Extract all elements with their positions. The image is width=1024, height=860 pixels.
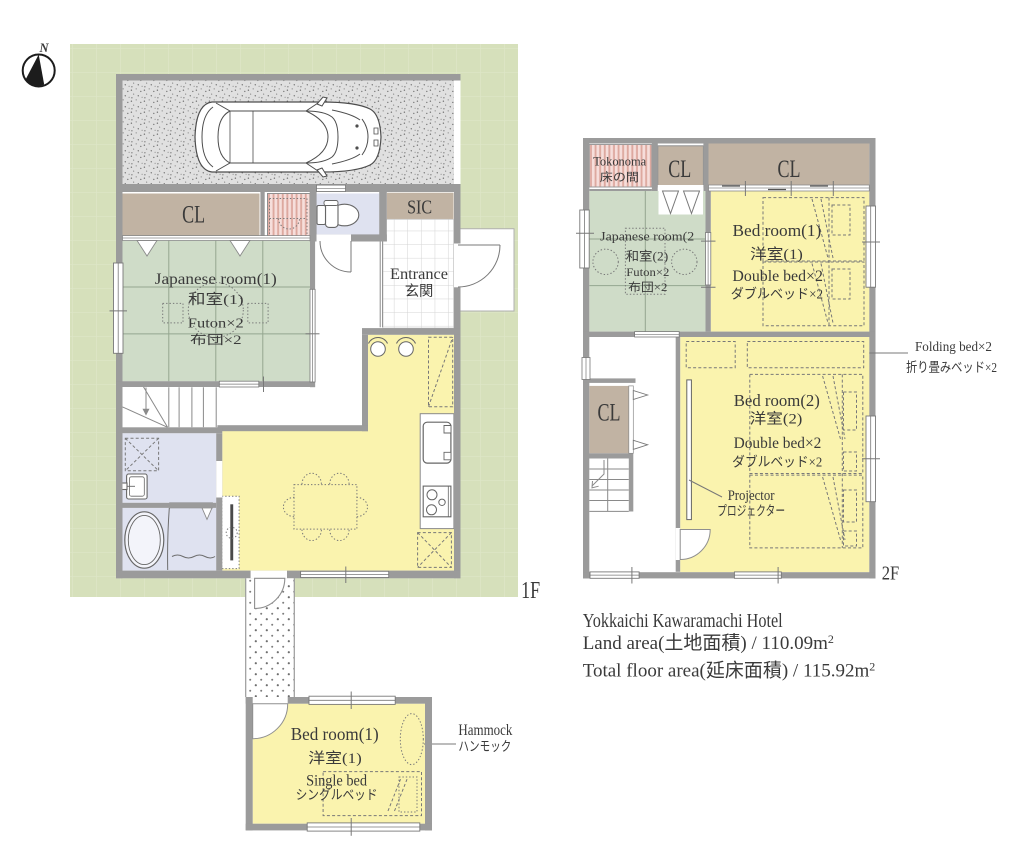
svg-text:玄関: 玄関 (405, 283, 434, 300)
svg-text:布団×2: 布団×2 (628, 281, 668, 294)
svg-text:CL: CL (778, 156, 801, 183)
svg-text:洋室(2): 洋室(2) (750, 411, 803, 428)
svg-text:SIC: SIC (407, 197, 432, 219)
svg-text:Double bed×2: Double bed×2 (734, 435, 822, 452)
svg-text:Tokonoma: Tokonoma (593, 154, 646, 169)
svg-text:Yokkaichi Kawaramachi Hotel: Yokkaichi Kawaramachi Hotel (583, 610, 783, 632)
svg-text:Bed room(2): Bed room(2) (734, 391, 820, 410)
svg-text:ダブルベッド×2: ダブルベッド×2 (732, 454, 822, 470)
svg-text:和室(1): 和室(1) (188, 291, 244, 308)
svg-text:床の間: 床の間 (600, 170, 639, 184)
svg-text:和室(2): 和室(2) (626, 248, 669, 263)
svg-text:Bed room(1): Bed room(1) (291, 724, 379, 745)
svg-text:Japanese room(1): Japanese room(1) (155, 271, 277, 288)
svg-text:Japanese room(2: Japanese room(2 (600, 229, 694, 244)
svg-text:N: N (38, 41, 49, 55)
svg-text:Entrance: Entrance (390, 266, 448, 283)
svg-text:Folding bed×2: Folding bed×2 (915, 339, 992, 354)
svg-text:Double bed×2: Double bed×2 (732, 268, 823, 285)
svg-text:CL: CL (668, 156, 691, 183)
svg-text:Futon×2: Futon×2 (188, 317, 244, 332)
svg-text:2F: 2F (882, 563, 900, 585)
svg-text:Projector: Projector (728, 488, 775, 504)
svg-text:布団×2: 布団×2 (190, 333, 242, 347)
svg-text:ハンモック: ハンモック (458, 739, 511, 754)
svg-text:1F: 1F (521, 578, 540, 604)
svg-text:Hammock: Hammock (458, 722, 512, 739)
svg-text:プロジェクター: プロジェクター (717, 504, 785, 519)
svg-text:Bed room(1): Bed room(1) (733, 221, 822, 240)
svg-text:CL: CL (182, 201, 205, 228)
svg-text:ダブルベッド×2: ダブルベッド×2 (731, 286, 823, 302)
svg-text:Futon×2: Futon×2 (626, 267, 669, 279)
svg-text:Land area(土地面積) / 110.09m2: Land area(土地面積) / 110.09m2 (583, 632, 834, 654)
svg-text:洋室(1): 洋室(1) (750, 246, 803, 263)
svg-text:折り畳みベッド×2: 折り畳みベッド×2 (906, 360, 997, 375)
svg-text:シングルベッド: シングルベッド (296, 788, 378, 803)
svg-text:Total floor area(延床面積) / 115.9: Total floor area(延床面積) / 115.92m2 (583, 660, 876, 682)
svg-text:洋室(1): 洋室(1) (308, 750, 361, 767)
svg-text:CL: CL (598, 400, 621, 427)
